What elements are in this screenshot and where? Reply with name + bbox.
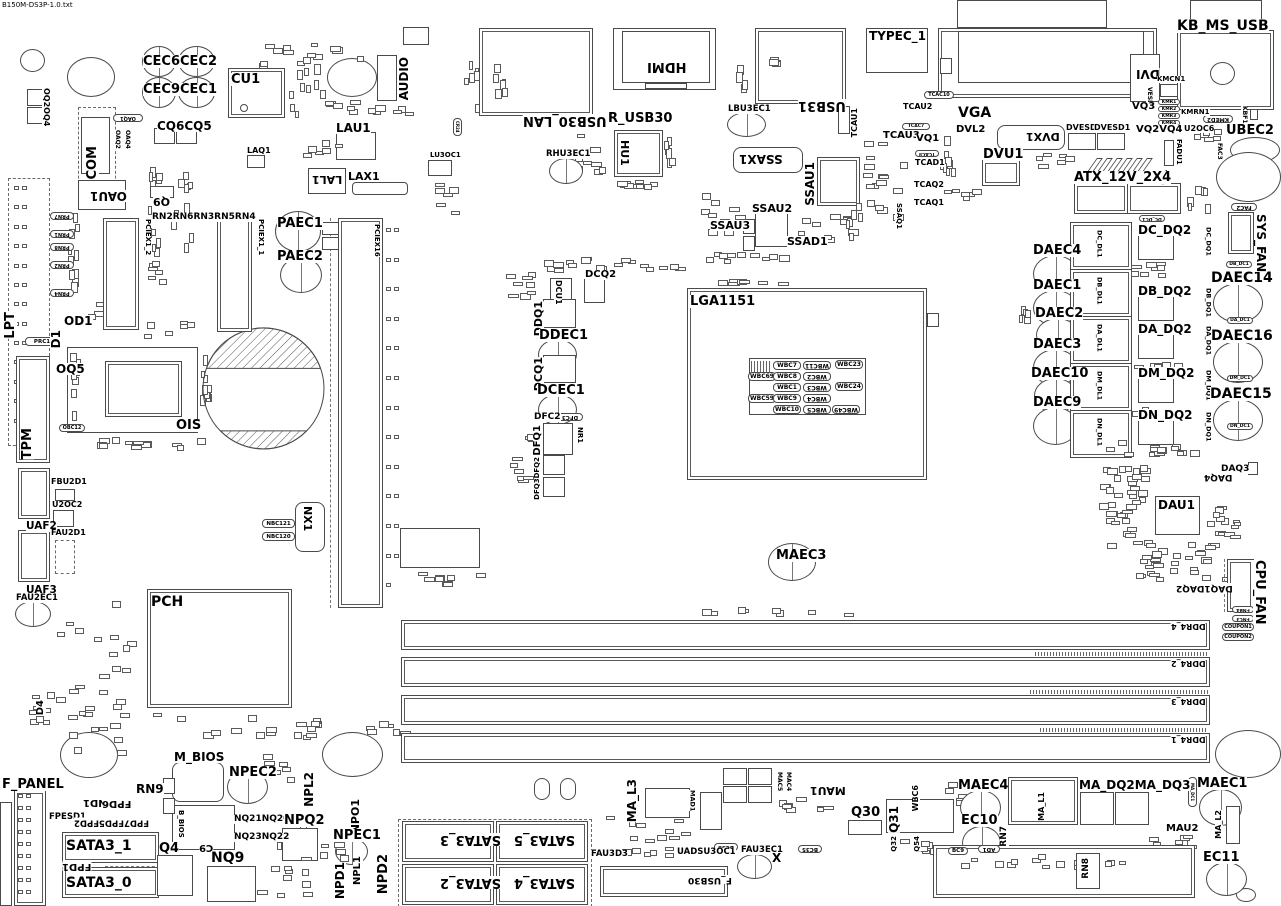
smd-part — [26, 854, 31, 858]
dm-dl1-label: DM_DL1 — [1096, 371, 1103, 400]
smd-part — [368, 108, 375, 114]
d4-label: D4 — [36, 700, 46, 715]
smd-part — [951, 168, 956, 177]
smd-part — [148, 276, 156, 281]
smd-part — [1124, 452, 1134, 457]
wbc59-designator: WBC59 — [748, 394, 776, 403]
daec10-label: DAEC10 — [1031, 367, 1088, 380]
mad1-label: MAD1 — [689, 790, 696, 811]
smd-part — [386, 287, 391, 291]
npl1-label: NPL1 — [353, 856, 363, 885]
ubec2-label: UBEC2 — [1226, 124, 1274, 137]
smd-part — [99, 443, 109, 449]
smd-part — [14, 225, 19, 229]
rn2rn6rn3rn5rn4-label: RN2RN6RN3RN5RN4 — [152, 213, 256, 222]
component-outline — [645, 788, 690, 818]
component-outline — [748, 786, 772, 803]
smd-part — [394, 228, 399, 232]
smd-part — [1205, 204, 1211, 214]
smd-part — [311, 43, 319, 48]
motherboard-silkscreen-diagram: B150M-DS3P-1.0.txt B150M-DS3P-1.0.txtCEC… — [0, 0, 1281, 906]
smd-part — [112, 437, 119, 444]
daec3-label: DAEC3 — [1033, 338, 1081, 351]
ad1-designator: AD1 — [978, 845, 1000, 853]
dau1-label: DAU1 — [1158, 499, 1195, 511]
smd-part — [630, 836, 638, 840]
kb-ms-usb-label: KB_MS_USB — [1177, 19, 1269, 33]
smd-part — [1043, 153, 1053, 158]
fadu1-label: FADU1 — [1175, 139, 1182, 165]
db-dq1-label: DB_DQ1 — [1205, 288, 1212, 317]
oaq2-label: OAQ2 — [114, 130, 120, 149]
component-outline — [1138, 377, 1174, 403]
smd-part — [26, 794, 31, 798]
smd-part — [944, 190, 951, 195]
nr1-label: NR1 — [576, 427, 583, 443]
smd-part — [1156, 262, 1166, 266]
smd-part — [144, 334, 152, 339]
q30-label: Q30 — [851, 806, 880, 819]
component-outline — [543, 477, 565, 497]
ssad1-label: SSAD1 — [787, 236, 828, 247]
smd-part — [1195, 551, 1205, 556]
smd-part — [424, 577, 435, 582]
connector-outline — [217, 218, 252, 332]
component-outline — [1164, 140, 1174, 166]
component-outline — [163, 798, 175, 814]
dn-dc1-designator: DN_DC1 — [1227, 423, 1253, 430]
smd-part — [283, 875, 293, 881]
connector-outline — [1127, 183, 1181, 214]
smd-part — [394, 494, 399, 498]
u2oc2-label: U2OC2 — [52, 501, 82, 509]
smd-part — [1207, 521, 1215, 527]
component-outline — [755, 213, 788, 247]
smd-part — [14, 244, 19, 248]
tcac10-designator: TCAC10 — [924, 91, 954, 99]
smd-part — [812, 222, 821, 226]
rhu3ec1-label: RHU3EC1 — [546, 150, 590, 159]
da-dq2-label: DA_DQ2 — [1138, 323, 1192, 335]
smd-part — [1213, 136, 1220, 141]
dvesd1-label: DVESD1 — [1094, 124, 1130, 132]
ddr4-2-label: DDR4_2 — [1171, 659, 1206, 667]
smd-part — [1114, 475, 1121, 482]
vga-label: VGA — [958, 106, 991, 120]
component-outline — [543, 423, 573, 455]
smd-part — [568, 263, 577, 268]
smd-part — [1190, 450, 1200, 457]
oaq4-label: OAQ4 — [124, 130, 130, 149]
smd-part — [18, 866, 23, 870]
smd-part — [961, 192, 970, 197]
npec2-label: NPEC2 — [229, 766, 277, 779]
smd-part — [149, 172, 153, 182]
smd-part — [879, 175, 889, 179]
laq1-label: LAQ1 — [247, 147, 271, 155]
smd-part — [333, 103, 344, 109]
smd-part — [386, 524, 391, 528]
daq4-label: DAQ4 — [1204, 472, 1232, 481]
smd-part — [1042, 865, 1049, 870]
maec4-label: MAEC4 — [958, 779, 1008, 792]
nbc121-designator: NBC121 — [262, 519, 295, 528]
wbc6-label: WBC6 — [912, 785, 920, 811]
smd-part — [1038, 854, 1046, 860]
coupon1-designator: COUPON1 — [1222, 623, 1254, 631]
component-outline — [377, 55, 397, 101]
wbc8-designator: WBC8 — [773, 372, 801, 381]
smd-part — [75, 685, 86, 689]
smd-part — [1108, 502, 1116, 508]
mounting-hole — [327, 58, 377, 97]
sata3-3-label: SATA3_3 — [440, 833, 501, 846]
smd-part — [972, 189, 983, 195]
smd-part — [1111, 521, 1120, 526]
component-outline — [1138, 419, 1174, 445]
smd-part — [394, 376, 399, 380]
smd-part — [1203, 559, 1212, 564]
component-outline — [1138, 333, 1174, 359]
smd-part — [443, 582, 453, 586]
smd-part — [18, 806, 23, 810]
smd-part — [527, 291, 536, 295]
ddr4-1-label: DDR4_1 — [1171, 735, 1206, 743]
smd-part — [1214, 129, 1222, 135]
cr24-designator: CR24 — [453, 118, 462, 136]
smd-part — [306, 85, 311, 93]
daec4-label: DAEC4 — [1033, 244, 1081, 257]
smd-part — [189, 233, 194, 244]
dcq2-label: DCQ2 — [585, 270, 616, 280]
q4-label: Q4 — [159, 842, 179, 855]
fpd6-label: FPD6 — [102, 798, 131, 808]
smd-part — [386, 435, 391, 439]
smd-part — [769, 59, 778, 66]
connector-outline — [933, 845, 1195, 898]
component-outline — [1115, 792, 1149, 825]
component-outline — [723, 768, 747, 785]
smd-part — [1107, 468, 1118, 474]
capacitor-outline — [1206, 862, 1247, 896]
smd-part — [394, 524, 399, 528]
rn8-label: RN8 — [1082, 858, 1091, 879]
b150m-ds3p-1-0-txt-label: B150M-DS3P-1.0.txt — [2, 2, 73, 9]
ec10-label: EC10 — [961, 814, 998, 827]
smd-part — [75, 224, 79, 232]
fnb4-designator: FNB4 — [1232, 606, 1254, 613]
smd-part — [72, 411, 77, 421]
mounting-hole — [20, 49, 45, 72]
m-bios-label: M_BIOS — [174, 751, 224, 763]
smd-part — [357, 56, 364, 62]
lau1-label: LAU1 — [336, 122, 371, 134]
smd-part — [22, 302, 27, 306]
smd-part — [802, 218, 811, 224]
smd-part — [1188, 203, 1192, 210]
ma-l2-label: MA_L2 — [1215, 810, 1223, 839]
smd-part — [68, 715, 78, 720]
smd-part — [56, 697, 66, 703]
smd-part — [282, 767, 291, 772]
smd-part — [394, 435, 399, 439]
smd-part — [614, 263, 623, 268]
smd-part — [418, 572, 429, 576]
smd-part — [14, 264, 19, 268]
fau2d1-label: FAU2D1 — [51, 529, 86, 537]
smd-part — [554, 268, 564, 273]
smd-part — [405, 112, 413, 116]
smd-part — [394, 406, 399, 410]
smd-part — [14, 302, 19, 306]
dfq1-label: DFQ1 — [533, 425, 543, 456]
lu3oc1-label: LU3OC1 — [430, 152, 461, 159]
q54-label: Q54 — [914, 836, 921, 852]
smd-part — [1136, 573, 1144, 579]
prn2-designator: PRN2 — [50, 261, 74, 269]
smd-part — [18, 830, 23, 834]
component-outline — [927, 313, 939, 327]
smd-part — [386, 494, 391, 498]
smd-part — [347, 106, 355, 110]
smd-part — [1107, 543, 1117, 549]
tcau1-label: TCAU1 — [851, 108, 859, 137]
smd-part — [303, 153, 312, 158]
smd-part — [375, 105, 386, 112]
smd-part — [393, 110, 402, 114]
dc-dc1-designator: DC_DC1 — [1139, 215, 1165, 222]
component-outline — [543, 455, 565, 475]
vq3-label: VQ3 — [1132, 102, 1155, 112]
smd-part — [1122, 510, 1133, 515]
component-outline — [1248, 462, 1258, 475]
kmr2-designator: KMR2 — [1158, 106, 1180, 112]
smd-part — [211, 730, 221, 736]
vq2vq4-label: VQ2VQ4 — [1136, 125, 1182, 135]
smd-part — [779, 255, 790, 262]
mac4-label: MAC4 — [785, 772, 791, 791]
smd-part — [1025, 310, 1031, 318]
smd-part — [674, 819, 684, 824]
smd-part — [184, 243, 188, 253]
smd-part — [866, 184, 875, 189]
component-outline — [0, 802, 12, 906]
wbc23-designator: WBC23 — [835, 360, 863, 369]
smd-part — [26, 866, 31, 870]
dn-dq1-label: DN_DQ1 — [1205, 412, 1212, 442]
smd-part — [1157, 447, 1166, 453]
smd-part — [995, 861, 1004, 868]
smd-part — [769, 254, 778, 261]
smd-part — [265, 44, 275, 50]
component-outline — [700, 792, 722, 830]
dfq3dfq2-label: DFQ3DFQ2 — [534, 457, 541, 500]
capacitor-outline — [549, 158, 583, 184]
smd-part — [502, 88, 507, 97]
pciex1-2-label: PCIEX1_2 — [144, 219, 151, 255]
smd-part — [177, 445, 185, 451]
da-dl1-label: DA_DL1 — [1096, 324, 1103, 352]
dm-dq2-label: DM_DQ2 — [1138, 367, 1194, 379]
wbc1-designator: WBC1 — [773, 383, 801, 392]
smd-part — [702, 193, 711, 200]
dvx1-label: DVX1 — [1026, 131, 1060, 142]
smd-part — [514, 469, 524, 474]
ois-label: OIS — [176, 419, 201, 432]
capacitor-outline — [727, 112, 766, 137]
smd-part — [512, 457, 523, 462]
smd-part — [367, 729, 377, 735]
ma-l1-label: MA_L1 — [1038, 792, 1046, 821]
wbc10-designator: WBC10 — [773, 405, 801, 414]
component-outline — [428, 160, 452, 176]
component-outline — [958, 31, 1144, 83]
db-dq2-label: DB_DQ2 — [1138, 285, 1192, 297]
smd-part — [69, 689, 79, 693]
lbu3ec1-label: LBU3EC1 — [728, 105, 771, 114]
smd-part — [1171, 446, 1180, 451]
sata3-2-label: SATA3_2 — [440, 876, 501, 889]
cec6-label: CEC6 — [143, 55, 180, 68]
smd-part — [75, 628, 84, 635]
smd-part — [1202, 575, 1211, 582]
smd-part — [742, 80, 748, 90]
wbc2-designator: WBC2 — [803, 372, 831, 381]
prn7-designator: PRN7 — [50, 212, 74, 220]
fpd1-label: FPD1 — [62, 861, 91, 871]
smd-part — [961, 863, 970, 870]
tpm-label: TPM — [21, 428, 34, 459]
npec1-label: NPEC1 — [333, 829, 381, 842]
component-outline — [543, 355, 576, 383]
nq23nq22-label: NQ23NQ22 — [234, 833, 289, 842]
smd-part — [394, 317, 399, 321]
smd-part — [665, 847, 673, 851]
smd-part — [526, 282, 535, 287]
smd-part — [1152, 551, 1163, 558]
smd-part — [435, 188, 446, 193]
smd-part — [846, 220, 850, 229]
smd-part — [304, 68, 309, 76]
od1-label: OD1 — [64, 315, 93, 327]
smd-part — [18, 890, 23, 894]
smd-part — [1118, 440, 1127, 445]
tcaq2-label: TCAQ2 — [914, 181, 944, 189]
fau3d3-label: FAU3D3 — [591, 850, 628, 859]
dc-dl1-label: DC_DL1 — [1096, 230, 1103, 257]
smd-part — [301, 857, 311, 861]
smd-part — [122, 668, 132, 673]
smd-part — [394, 554, 399, 558]
smd-part — [18, 842, 23, 846]
sata3-4-label: SATA3_4 — [514, 876, 575, 889]
wbc3-designator: WBC3 — [803, 383, 831, 392]
smd-part — [778, 282, 789, 286]
smd-part — [849, 233, 854, 241]
smd-part — [1190, 570, 1199, 575]
smd-part — [669, 158, 676, 166]
smd-part — [876, 180, 887, 186]
mounting-hole-hatched — [200, 325, 327, 452]
mac5-label: MAC5 — [776, 772, 782, 791]
ssax1-label: SSAX1 — [739, 153, 783, 165]
capacitor-outline — [240, 104, 248, 112]
part-designator — [352, 182, 408, 195]
smd-part — [724, 259, 732, 264]
smd-part — [494, 64, 501, 73]
smd-part — [729, 207, 739, 212]
oau1-label: OAU1 — [90, 190, 127, 202]
smd-part — [386, 554, 391, 558]
x-label: X — [772, 852, 781, 864]
smd-part — [640, 264, 648, 269]
smd-part — [1036, 156, 1044, 161]
capacitor-outline — [1213, 399, 1263, 441]
da-dc1-designator: DA_DC1 — [1227, 317, 1253, 324]
ma-dq2ma-dq3-label: MA_DQ2MA_DQ3 — [1079, 779, 1190, 791]
smd-part — [18, 854, 23, 858]
smd-part — [302, 869, 309, 876]
mau2-label: MAU2 — [1166, 824, 1198, 834]
smd-part — [1019, 315, 1024, 322]
smd-part — [1131, 271, 1139, 277]
smd-part — [394, 346, 399, 350]
dm-dc1-designator: DM_DC1 — [1227, 375, 1253, 382]
smd-part — [47, 692, 55, 699]
smd-part — [303, 892, 313, 896]
hdmi-label: HDMI — [647, 60, 686, 73]
smd-part — [863, 173, 874, 178]
smd-part — [1145, 565, 1154, 569]
smd-part — [1129, 494, 1137, 500]
smd-part — [386, 317, 391, 321]
smd-part — [508, 294, 518, 298]
smd-part — [22, 322, 27, 326]
smd-part — [493, 74, 500, 83]
smd-part — [577, 134, 586, 138]
dashed-line — [330, 218, 331, 608]
smd-part — [109, 652, 118, 657]
capacitor-outline — [737, 854, 772, 879]
smd-part — [14, 283, 19, 287]
wbc49-designator: WBC49 — [832, 405, 860, 414]
smd-part — [26, 818, 31, 822]
smd-part — [900, 162, 908, 169]
paec2-label: PAEC2 — [277, 250, 323, 263]
smd-part — [79, 711, 86, 715]
smd-part — [32, 695, 40, 700]
smd-part — [858, 213, 862, 222]
component-outline — [1080, 792, 1114, 825]
lpt-label: LPT — [4, 312, 17, 339]
connector-outline — [401, 657, 1210, 687]
q31-label: Q31 — [888, 806, 900, 833]
smd-part — [665, 829, 673, 834]
kmr1-designator: KMR1 — [1158, 99, 1180, 105]
smd-part — [156, 173, 163, 182]
oq2oq4-label: OQ2OQ4 — [42, 88, 50, 126]
ddr4-3-label: DDR4_3 — [1171, 697, 1206, 705]
rn9-label: RN9 — [136, 783, 164, 795]
obc12-designator: OBC12 — [59, 424, 85, 432]
pciex1-1-label: PCIEX1_1 — [257, 219, 264, 255]
smd-part — [148, 267, 158, 271]
smd-part — [314, 80, 319, 91]
smd-part — [657, 835, 667, 842]
smd-part — [69, 732, 78, 739]
component-outline — [560, 778, 576, 800]
smd-part — [1119, 466, 1126, 472]
